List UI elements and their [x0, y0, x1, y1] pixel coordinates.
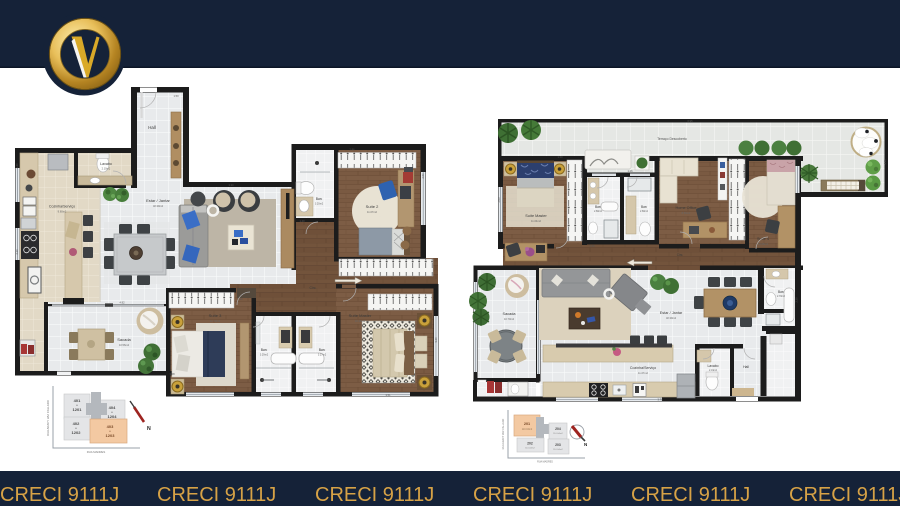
svg-text:1.26: 1.26: [627, 169, 633, 173]
svg-text:2.20: 2.20: [15, 249, 19, 255]
svg-text:Bwc: Bwc: [778, 290, 784, 294]
svg-text:4.10: 4.10: [883, 159, 887, 165]
svg-text:Estar / Jantar: Estar / Jantar: [146, 198, 170, 203]
svg-text:Estar / Jantar: Estar / Jantar: [660, 311, 683, 315]
svg-text:11.07m2: 11.07m2: [367, 210, 377, 214]
svg-text:110.04m2: 110.04m2: [525, 448, 535, 450]
svg-text:Cozinha/Serviço: Cozinha/Serviço: [49, 205, 75, 209]
svg-text:Suíte 3: Suíte 3: [209, 313, 222, 318]
svg-text:3.27m2: 3.27m2: [318, 354, 327, 357]
svg-text:Home Office: Home Office: [675, 206, 696, 210]
svg-text:Hall: Hall: [743, 365, 749, 369]
svg-text:CRECI 9111J: CRECI 9111J: [789, 484, 900, 506]
svg-text:404: 404: [109, 405, 116, 410]
svg-text:4.92: 4.92: [119, 301, 125, 305]
svg-text:Bwc: Bwc: [641, 205, 647, 209]
svg-text:8.50m2: 8.50m2: [682, 211, 691, 215]
svg-text:Bwc: Bwc: [316, 197, 323, 201]
svg-text:CRECI 9111J: CRECI 9111J: [315, 484, 434, 506]
svg-text:204: 204: [555, 427, 561, 431]
svg-text:3.20m2: 3.20m2: [315, 203, 324, 206]
svg-text:202: 202: [527, 442, 533, 446]
svg-text:3.20: 3.20: [434, 337, 438, 343]
svg-text:201: 201: [524, 422, 530, 426]
svg-text:RUA ARACY VAZ CALLADO: RUA ARACY VAZ CALLADO: [502, 419, 505, 450]
svg-text:3.30: 3.30: [228, 183, 234, 187]
svg-text:Sacada: Sacada: [117, 337, 131, 342]
svg-text:RUA ARACY VAZ CALLADO: RUA ARACY VAZ CALLADO: [46, 399, 50, 436]
svg-text:9.60m2: 9.60m2: [58, 209, 67, 213]
svg-text:2.60: 2.60: [497, 197, 501, 203]
svg-text:32.39m2: 32.39m2: [666, 316, 677, 320]
svg-text:Suíte 4: Suíte 4: [757, 237, 769, 241]
svg-text:2.60: 2.60: [421, 173, 425, 179]
svg-text:2.19m2: 2.19m2: [709, 369, 718, 372]
svg-text:3.40: 3.40: [473, 317, 477, 323]
svg-text:1203: 1203: [106, 433, 116, 438]
svg-text:2.20: 2.20: [795, 297, 799, 303]
svg-text:1.40: 1.40: [299, 219, 305, 223]
svg-text:1.50: 1.50: [173, 94, 179, 98]
svg-text:10.56m2: 10.56m2: [119, 343, 130, 347]
svg-text:2.80m2: 2.80m2: [594, 210, 603, 213]
svg-text:Bwc: Bwc: [595, 205, 601, 209]
svg-text:2.70m2: 2.70m2: [777, 295, 786, 298]
svg-text:Circ.: Circ.: [310, 286, 317, 290]
svg-text:Bwc: Bwc: [261, 348, 268, 352]
svg-text:2.86: 2.86: [349, 148, 355, 152]
svg-text:RUA MADRES: RUA MADRES: [87, 450, 106, 454]
svg-text:Suíte Master: Suíte Master: [349, 313, 372, 318]
svg-text:1202: 1202: [72, 430, 82, 435]
svg-text:10.95m2: 10.95m2: [758, 242, 769, 246]
svg-text:3.75: 3.75: [657, 398, 663, 402]
svg-text:Cozinha/Serviço: Cozinha/Serviço: [630, 366, 656, 370]
svg-text:32.39m2: 32.39m2: [153, 204, 164, 208]
svg-text:1201: 1201: [73, 407, 83, 412]
svg-text:2.19m2: 2.19m2: [102, 167, 111, 171]
svg-text:Circ.: Circ.: [677, 253, 684, 257]
svg-text:2.80m2: 2.80m2: [640, 210, 649, 213]
svg-text:Suíte 2: Suíte 2: [366, 204, 379, 209]
svg-text:1.65: 1.65: [589, 244, 595, 248]
svg-text:11.67m2: 11.67m2: [638, 371, 648, 375]
svg-text:401: 401: [74, 398, 81, 403]
svg-text:CRECI 9111J: CRECI 9111J: [631, 484, 750, 506]
svg-text:4.40: 4.40: [15, 163, 19, 169]
svg-text:N: N: [584, 442, 587, 447]
svg-text:3.08: 3.08: [169, 372, 175, 376]
svg-text:12.73m2: 12.73m2: [210, 319, 221, 323]
svg-text:CRECI 9111J: CRECI 9111J: [157, 484, 276, 506]
svg-text:1.20: 1.20: [557, 155, 563, 159]
svg-text:110.04m2: 110.04m2: [553, 433, 563, 435]
svg-text:16.15m2: 16.15m2: [355, 319, 366, 323]
svg-text:3.51: 3.51: [385, 393, 391, 397]
svg-text:203: 203: [555, 443, 561, 447]
svg-text:Sacada: Sacada: [503, 312, 517, 316]
svg-text:Bwc: Bwc: [319, 348, 326, 352]
svg-text:110.04m2: 110.04m2: [553, 449, 563, 451]
svg-text:Lavabo: Lavabo: [707, 364, 718, 368]
svg-text:Terraço Descoberto: Terraço Descoberto: [657, 137, 687, 141]
svg-text:CRECI 9111J: CRECI 9111J: [0, 484, 119, 506]
svg-text:CRECI 9111J: CRECI 9111J: [473, 484, 592, 506]
svg-text:403: 403: [107, 424, 114, 429]
svg-text:N: N: [147, 426, 151, 432]
svg-text:110.04m2: 110.04m2: [522, 428, 533, 431]
svg-text:3.29m2: 3.29m2: [260, 354, 269, 357]
svg-text:402: 402: [73, 421, 80, 426]
svg-text:11.04m2: 11.04m2: [531, 219, 541, 223]
svg-text:Lavabo: Lavabo: [100, 162, 112, 166]
svg-text:Suíte Master: Suíte Master: [525, 214, 547, 218]
svg-text:1204: 1204: [108, 414, 118, 419]
svg-text:10.70m2: 10.70m2: [504, 317, 515, 321]
svg-text:Hall: Hall: [148, 125, 156, 130]
svg-text:RUA MADRES: RUA MADRES: [537, 461, 553, 464]
svg-text:6.95: 6.95: [687, 119, 693, 123]
